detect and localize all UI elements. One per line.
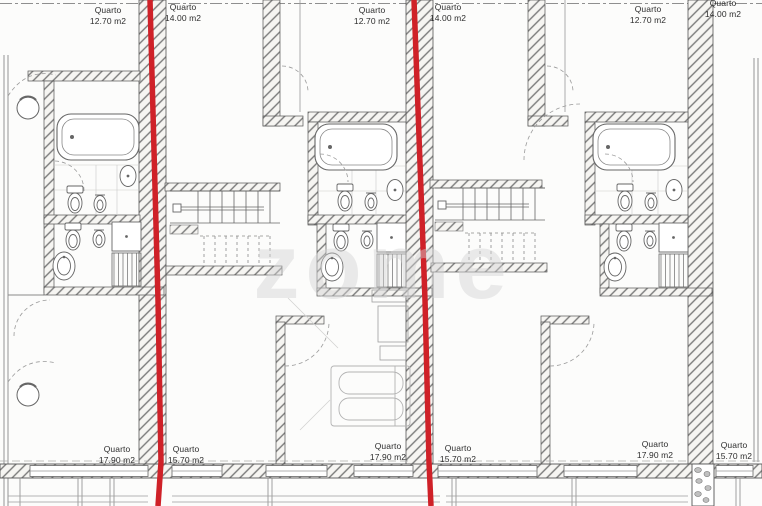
bidet-icon: [94, 195, 106, 213]
railings: [8, 478, 740, 506]
watermark-text: zome: [253, 216, 512, 318]
room-area: 12.70 m2: [630, 15, 666, 25]
window: [172, 466, 222, 477]
sink-icon: [387, 180, 403, 201]
window: [30, 466, 148, 477]
column-circle: [17, 97, 39, 119]
party-wall: [688, 0, 713, 465]
bathtub-icon: [57, 114, 139, 160]
bathtub-icon: [315, 124, 397, 170]
room-label-bottom-5: Quarto 17.90 m2: [613, 439, 697, 462]
toilet-icon: [617, 184, 633, 211]
room-name: Quarto: [375, 441, 402, 451]
room-name: Quarto: [95, 5, 122, 15]
room-name: Quarto: [173, 444, 200, 454]
sink-icon: [604, 253, 626, 281]
bed-sketch: [331, 366, 410, 426]
room-name: Quarto: [710, 0, 737, 8]
bottom-facade: [0, 461, 762, 506]
room-name: Quarto: [435, 2, 462, 12]
floorplan: zome Quarto 12.70 m2 Quarto 14.00 m2 Qua…: [0, 0, 762, 506]
room-label-top-3: Quarto 12.70 m2: [330, 5, 414, 28]
window: [438, 466, 537, 477]
room-label-top-4: Quarto 14.00 m2: [406, 2, 490, 25]
bidet-icon: [365, 193, 377, 211]
window: [266, 466, 327, 477]
room-label-bottom-4: Quarto 15.70 m2: [416, 443, 500, 466]
column-circle: [17, 384, 39, 406]
toilet-icon: [337, 184, 353, 211]
room-name: Quarto: [170, 2, 197, 12]
left-edge-wall: [4, 55, 44, 506]
room-name: Quarto: [359, 5, 386, 15]
floorplan-drawing: zome: [0, 0, 762, 506]
stone-pier: [692, 464, 714, 506]
room-label-bottom-6: Quarto 15.70 m2: [692, 440, 762, 463]
window: [564, 466, 637, 477]
room-label-top-1: Quarto 12.70 m2: [66, 5, 150, 28]
right-edge-wall: [754, 58, 758, 462]
toilet-icon: [616, 224, 632, 251]
bathtub-icon: [593, 124, 675, 170]
room-area: 17.90 m2: [637, 450, 673, 460]
room-name: Quarto: [635, 4, 662, 14]
sink-icon: [53, 252, 75, 280]
room-area: 12.70 m2: [90, 16, 126, 26]
room-area: 15.70 m2: [168, 455, 204, 465]
bidet-icon: [644, 231, 656, 249]
window: [354, 466, 413, 477]
toilet-icon: [65, 223, 81, 250]
room-area: 14.00 m2: [430, 13, 466, 23]
room-name: Quarto: [642, 439, 669, 449]
room-label-top-2: Quarto 14.00 m2: [141, 2, 225, 25]
room-name: Quarto: [104, 444, 131, 454]
room-area: 14.00 m2: [705, 9, 741, 19]
shower-icon: [112, 222, 141, 286]
room-name: Quarto: [721, 440, 748, 450]
room-label-top-6: Quarto 14.00 m2: [681, 0, 762, 21]
shower-icon: [659, 223, 688, 287]
toilet-icon: [67, 186, 83, 213]
bidet-icon: [93, 230, 105, 248]
room-area: 15.70 m2: [716, 451, 752, 461]
room-area: 14.00 m2: [165, 13, 201, 23]
room-area: 15.70 m2: [440, 454, 476, 464]
sink-icon: [120, 166, 136, 187]
bidet-icon: [645, 193, 657, 211]
room-label-top-5: Quarto 12.70 m2: [606, 4, 690, 27]
window: [716, 466, 753, 477]
sink-icon: [666, 180, 682, 201]
room-area: 17.90 m2: [99, 455, 135, 465]
room-name: Quarto: [445, 443, 472, 453]
room-label-bottom-2: Quarto 15.70 m2: [144, 444, 228, 467]
room-area: 12.70 m2: [354, 16, 390, 26]
room-area: 17.90 m2: [370, 452, 406, 462]
